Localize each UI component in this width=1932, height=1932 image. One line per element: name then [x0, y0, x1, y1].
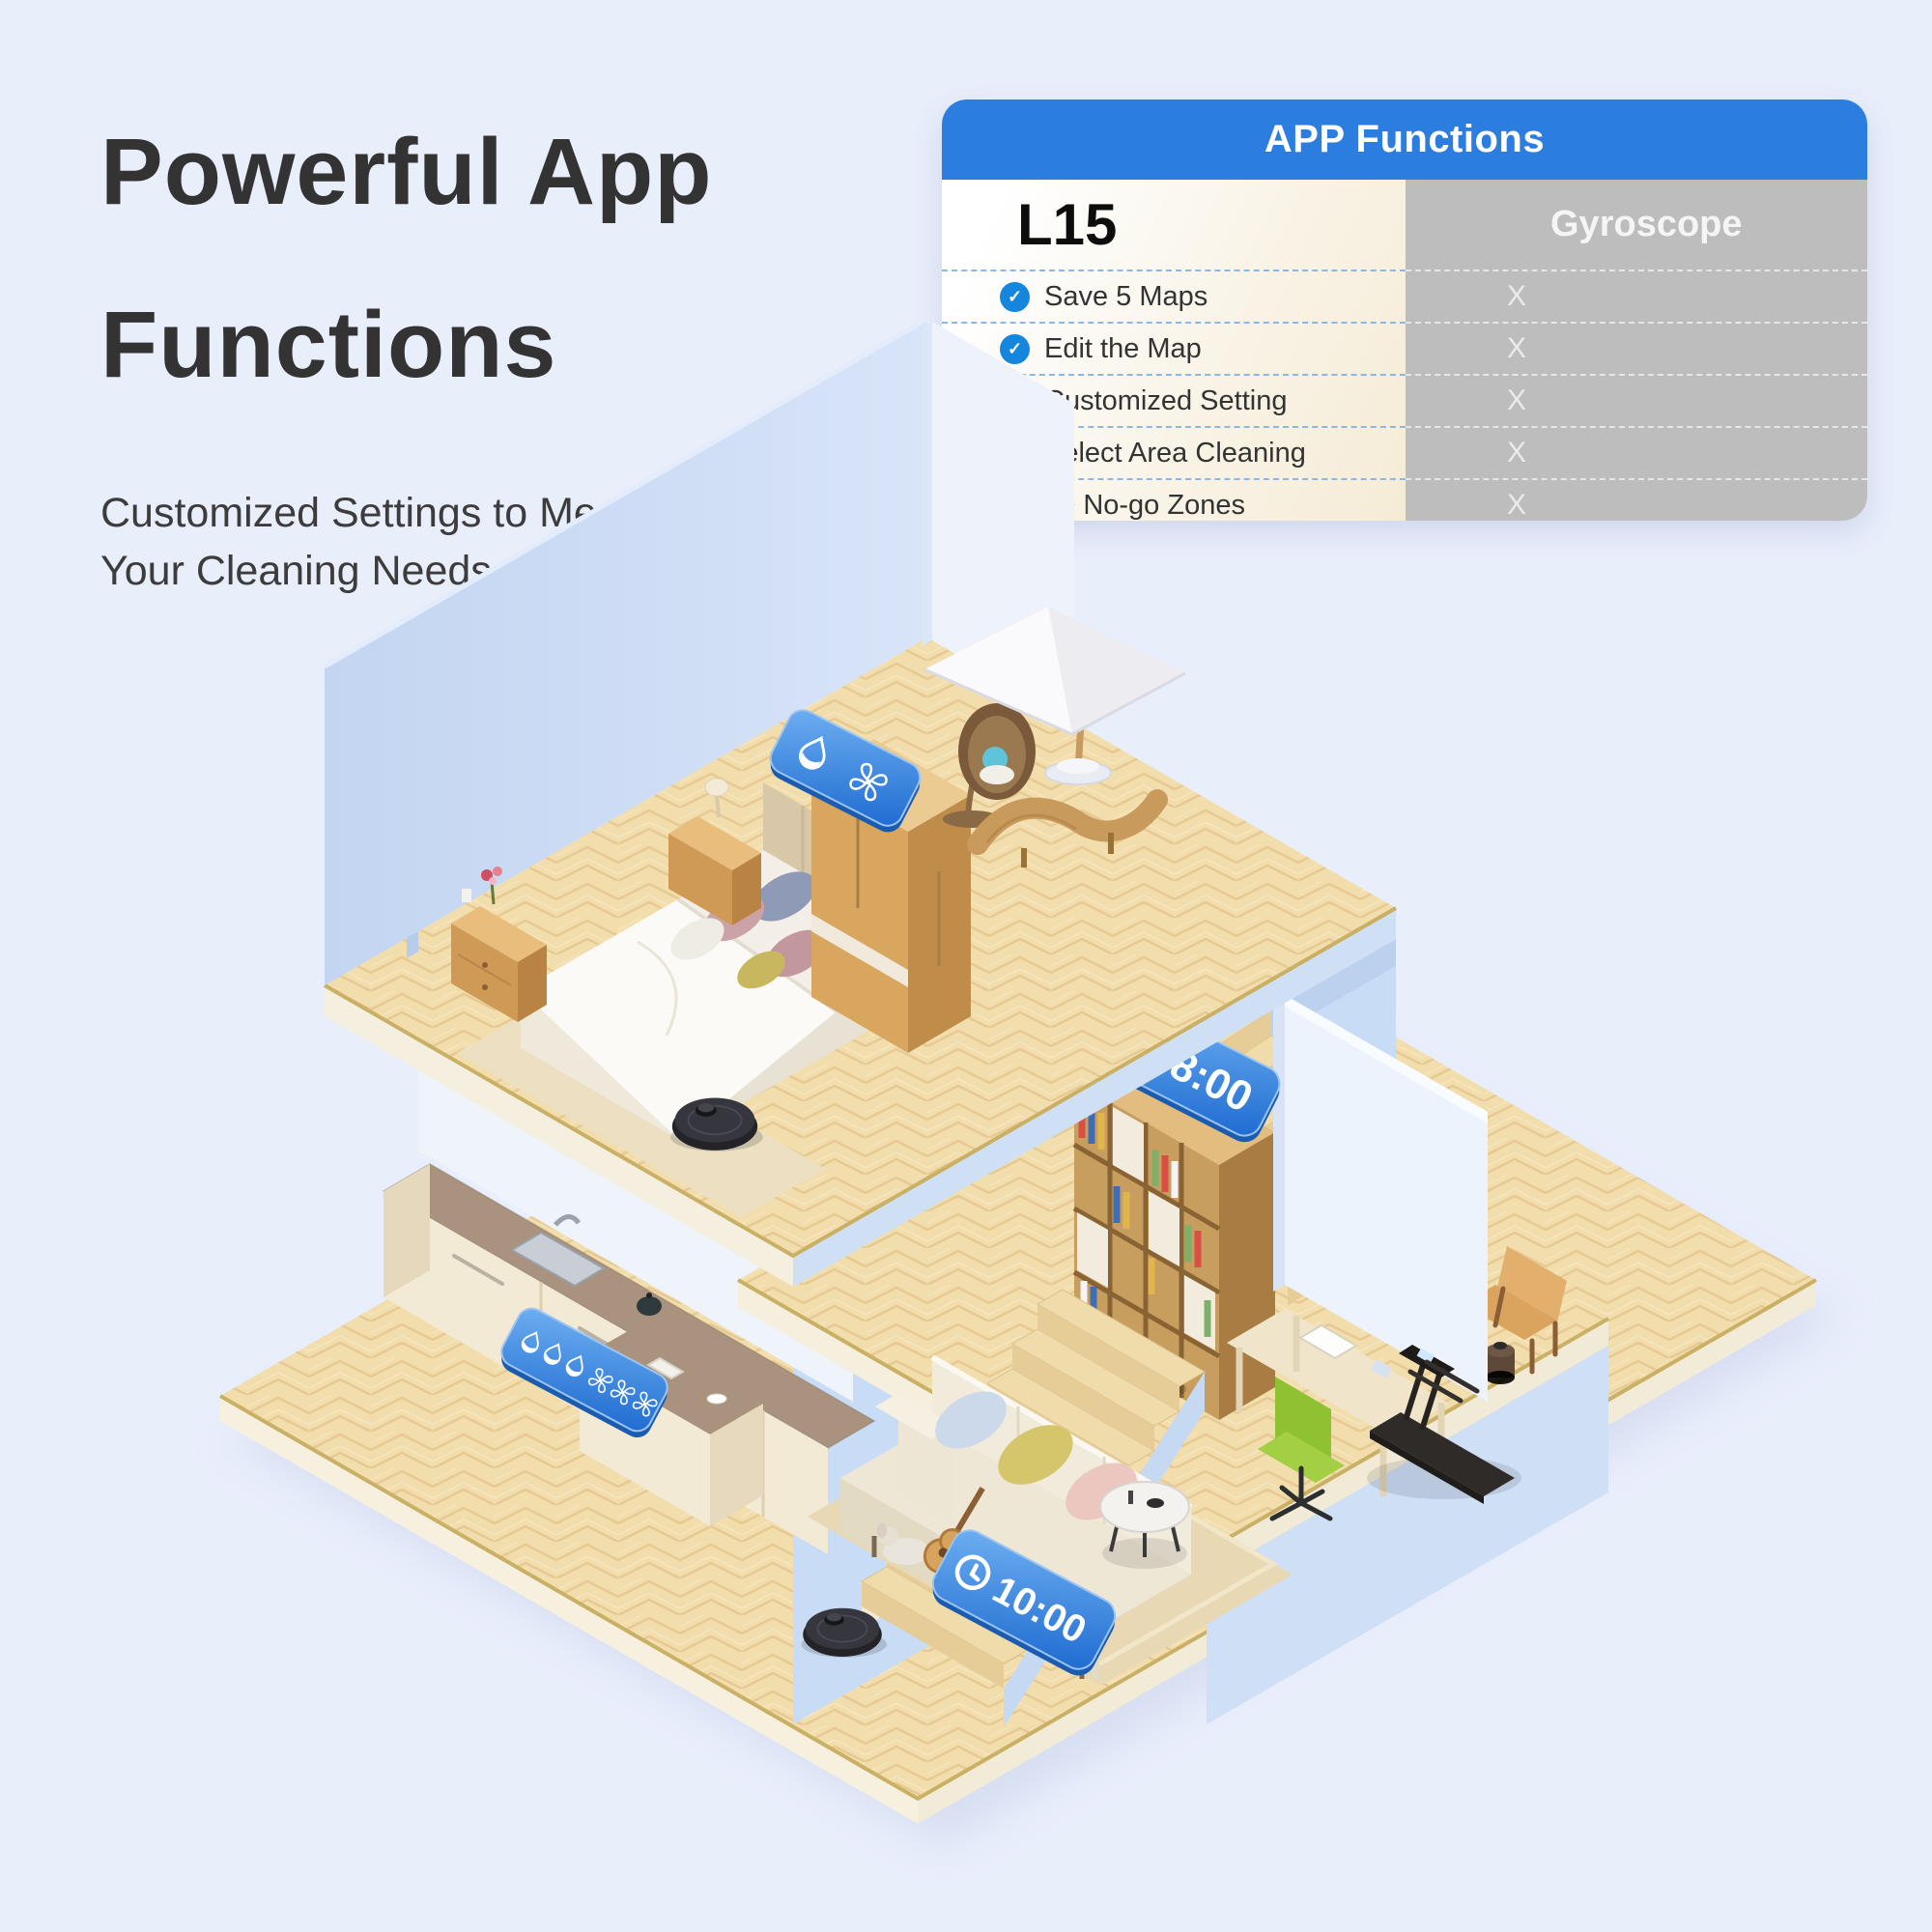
stump-side-table: [1486, 1342, 1515, 1384]
lamp-post: [717, 794, 719, 817]
cup: [462, 889, 471, 902]
coffee-table: [1100, 1482, 1189, 1569]
plate: [707, 1394, 726, 1404]
lamp-shade: [705, 779, 728, 796]
house-illustration: 8:00: [0, 0, 1932, 1932]
bottle: [1128, 1491, 1133, 1504]
kettle: [637, 1296, 662, 1316]
